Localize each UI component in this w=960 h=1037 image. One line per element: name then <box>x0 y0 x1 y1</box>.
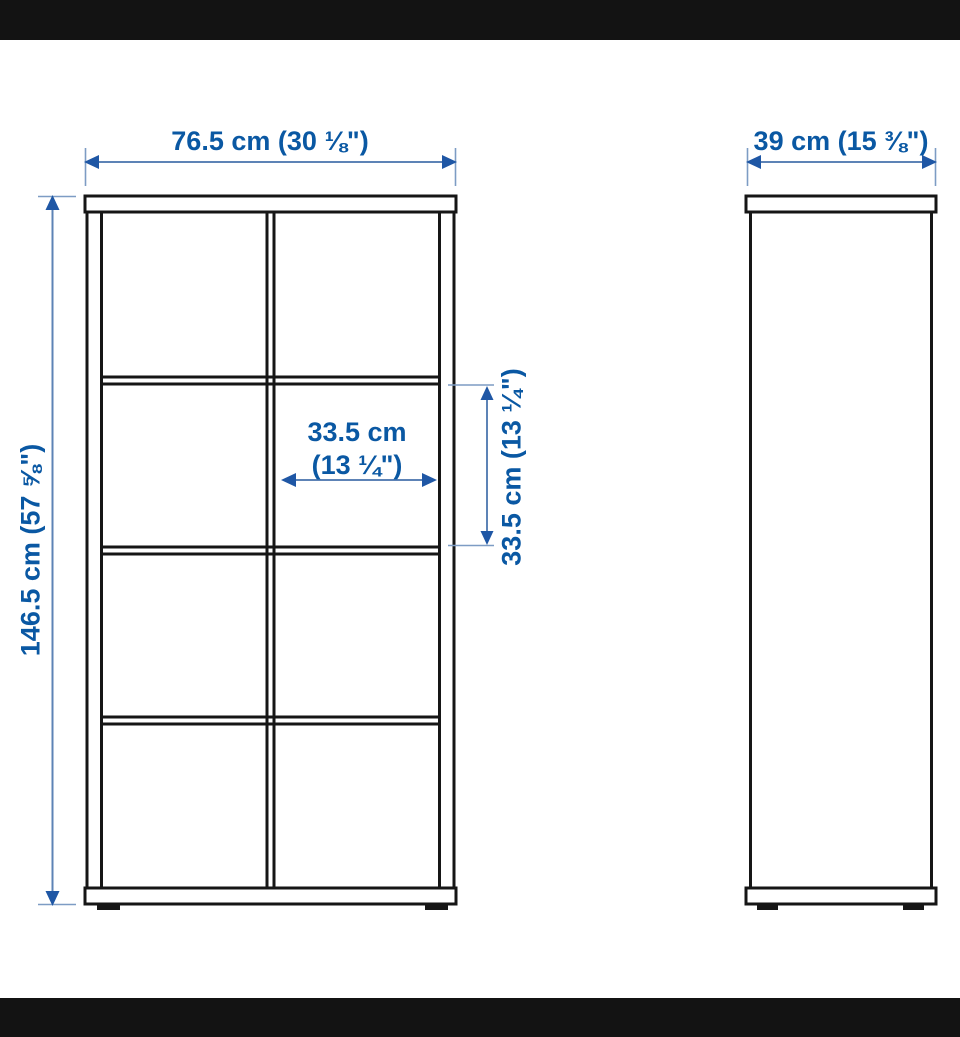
front-right-foot <box>425 904 448 910</box>
front-top-board <box>85 196 456 212</box>
front-bottom-board <box>85 888 456 904</box>
inner-width-label-line1: 33.5 cm <box>247 416 467 449</box>
side-right-foot <box>903 904 924 910</box>
side-bottom-board <box>746 888 936 904</box>
side-view-drawing <box>746 196 936 910</box>
side-top-board <box>746 196 936 212</box>
width-dimension-label: 76.5 cm (30 ⅛") <box>90 126 450 157</box>
arrowhead-down-icon <box>481 531 494 545</box>
height-dimension-label: 146.5 cm (57 ⅝") <box>16 444 47 656</box>
inner-width-dimension-label: 33.5 cm (13 ¼") <box>247 416 467 482</box>
arrowhead-up-icon <box>481 386 494 400</box>
side-left-foot <box>757 904 778 910</box>
inner-width-label-line2: (13 ¼") <box>247 449 467 482</box>
depth-dimension-label: 39 cm (15 ⅜") <box>721 126 960 157</box>
inner-height-dimension-label: 33.5 cm (13 ¼") <box>497 368 528 565</box>
front-left-foot <box>97 904 120 910</box>
screenshot-root: 76.5 cm (30 ⅛") 39 cm (15 ⅜") 146.5 cm (… <box>0 0 960 1037</box>
front-view-drawing <box>85 196 456 910</box>
